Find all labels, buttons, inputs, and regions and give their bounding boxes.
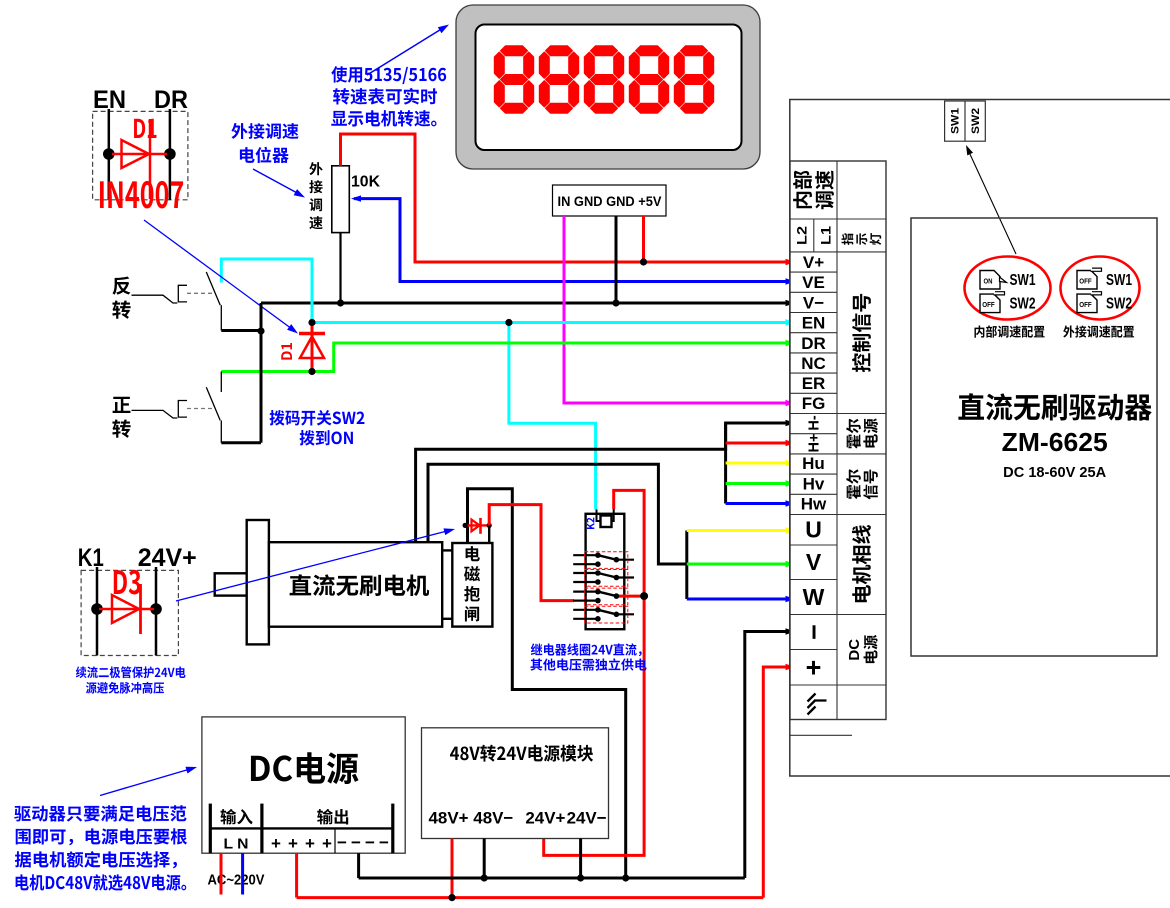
svg-text:AC~220V: AC~220V [208, 873, 265, 889]
svg-text:ZM-6625: ZM-6625 [1002, 427, 1108, 457]
svg-text:SW1: SW1 [1010, 272, 1036, 289]
svg-text:VE: VE [802, 273, 825, 292]
svg-text:−: − [365, 833, 375, 852]
svg-text:−: − [799, 624, 829, 640]
svg-text:+: + [322, 834, 332, 853]
svg-text:W: W [803, 584, 825, 610]
svg-text:Hv: Hv [803, 475, 825, 494]
svg-text:ER: ER [802, 374, 826, 393]
svg-text:L N: L N [224, 836, 249, 853]
svg-text:+: + [288, 834, 298, 853]
svg-text:24V−: 24V− [567, 809, 607, 828]
svg-text:FG: FG [802, 394, 826, 413]
svg-text:SW2: SW2 [970, 108, 982, 134]
svg-text:10K: 10K [351, 174, 380, 191]
svg-text:DC: DC [846, 639, 863, 661]
svg-text:U: U [805, 517, 822, 543]
svg-text:−: − [337, 833, 347, 852]
svg-text:OFF: OFF [982, 300, 995, 309]
svg-text:V+: V+ [803, 253, 824, 272]
svg-text:−: − [379, 833, 389, 852]
svg-text:L2: L2 [794, 226, 810, 245]
svg-text:V−: V− [803, 294, 824, 313]
svg-text:48V−: 48V− [473, 809, 513, 828]
svg-text:24V+: 24V+ [138, 544, 197, 572]
svg-text:ON: ON [984, 276, 993, 285]
svg-text:OFF: OFF [1079, 300, 1092, 309]
svg-text:K1: K1 [78, 544, 104, 572]
svg-text:−: − [351, 833, 361, 852]
svg-text:+: + [271, 834, 281, 853]
svg-text:SW1: SW1 [1106, 272, 1132, 289]
svg-text:24V+: 24V+ [525, 809, 565, 828]
svg-text:SW1: SW1 [950, 108, 962, 134]
svg-text:DC 18-60V 25A: DC 18-60V 25A [1003, 465, 1107, 481]
svg-text:48V+: 48V+ [429, 809, 469, 828]
svg-text:Hw: Hw [801, 495, 827, 514]
svg-text:L1: L1 [818, 226, 834, 245]
svg-text:IN GND GND +5V: IN GND GND +5V [558, 194, 662, 209]
svg-text:NC: NC [801, 354, 826, 373]
svg-text:EN: EN [802, 314, 826, 333]
svg-text:OFF: OFF [1079, 276, 1092, 285]
svg-text:+: + [305, 834, 315, 853]
svg-text:SW2: SW2 [1106, 296, 1132, 313]
svg-text:H+: H+ [807, 434, 823, 453]
svg-text:DR: DR [801, 334, 826, 353]
svg-text:H-: H- [807, 415, 823, 430]
svg-text:SW2: SW2 [1010, 296, 1036, 313]
svg-text:Hu: Hu [802, 454, 825, 473]
svg-text:V: V [806, 549, 822, 575]
svg-text:+: + [806, 653, 822, 683]
